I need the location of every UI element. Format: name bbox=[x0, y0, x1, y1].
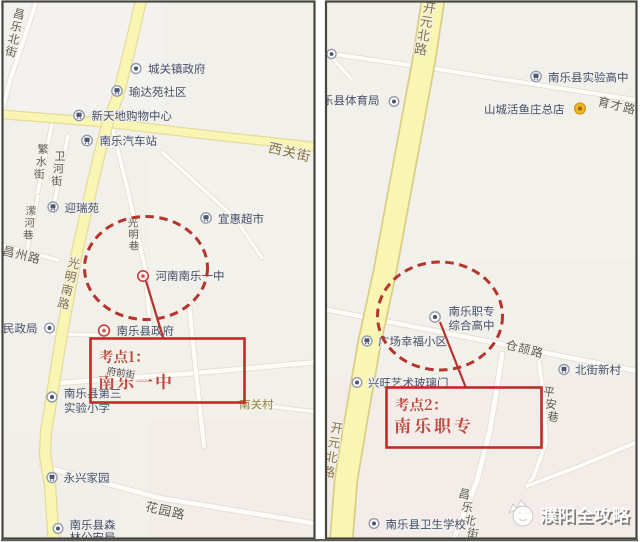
svg-text:广场幸福小区: 广场幸福小区 bbox=[378, 334, 447, 350]
svg-text:南乐县政府: 南乐县政府 bbox=[117, 323, 175, 339]
svg-text:巷: 巷 bbox=[23, 228, 34, 243]
svg-text:街: 街 bbox=[51, 173, 62, 189]
svg-text:迎瑞苑: 迎瑞苑 bbox=[65, 200, 100, 216]
svg-text:宜惠超市: 宜惠超市 bbox=[218, 211, 264, 227]
svg-text:山城活鱼庄总店: 山城活鱼庄总店 bbox=[484, 102, 565, 118]
svg-text:瑜达苑社区: 瑜达苑社区 bbox=[129, 84, 187, 100]
svg-text:南乐职专: 南乐职专 bbox=[394, 412, 474, 437]
svg-text:巷: 巷 bbox=[129, 239, 140, 254]
svg-text:新天地购物中心: 新天地购物中心 bbox=[92, 108, 173, 124]
svg-text:城关镇政府: 城关镇政府 bbox=[148, 61, 206, 77]
svg-text:民政局: 民政局 bbox=[3, 321, 38, 337]
svg-text:河南南乐一中: 河南南乐一中 bbox=[156, 268, 225, 284]
svg-text:街: 街 bbox=[34, 166, 45, 182]
svg-text:濮阳全攻略: 濮阳全攻略 bbox=[540, 503, 630, 528]
svg-text:南乐汽车站: 南乐汽车站 bbox=[100, 133, 158, 149]
svg-text:乐县体育局: 乐县体育局 bbox=[322, 93, 380, 109]
svg-text:考点1：: 考点1： bbox=[99, 346, 149, 367]
svg-text:南乐县卫生学校: 南乐县卫生学校 bbox=[386, 517, 467, 533]
svg-text:永兴家园: 永兴家园 bbox=[64, 470, 110, 486]
svg-text:南乐县实验高中: 南乐县实验高中 bbox=[548, 70, 629, 86]
svg-text:北街新村: 北街新村 bbox=[575, 362, 621, 378]
svg-text:综合高中: 综合高中 bbox=[449, 318, 495, 334]
